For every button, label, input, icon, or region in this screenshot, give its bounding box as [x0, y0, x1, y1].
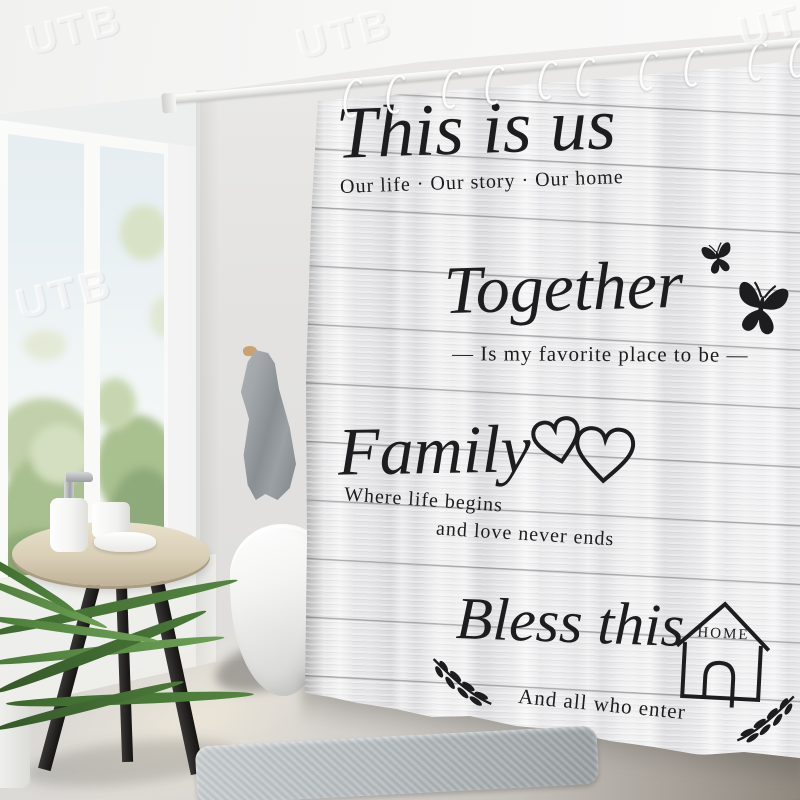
butterfly-icon — [725, 271, 797, 345]
print-headline-family: Family — [337, 414, 531, 485]
soap-dispenser-nozzle — [66, 472, 93, 482]
laurel-branch-icon — [734, 692, 798, 744]
print-headline-bless-this: Bless this — [455, 588, 685, 656]
soap-dispenser-bottle — [50, 498, 88, 552]
print-headline-together: Together — [443, 250, 684, 324]
print-headline-this-is-us: This is us — [335, 87, 617, 171]
laurel-branch-icon — [430, 652, 494, 710]
bathroom-scene: This is us Our life · Our story · Our ho… — [0, 0, 800, 800]
soap-dish — [94, 532, 156, 552]
butterfly-icon — [696, 235, 740, 282]
print-subline-all-who-enter: And all who enter — [517, 686, 686, 723]
print-subline-favorite-place: — Is my favorite place to be — — [452, 343, 749, 366]
tree-foliage — [94, 378, 136, 430]
tree-branch — [24, 330, 66, 360]
print-subline-where-life-begins: Where life begins — [343, 484, 503, 515]
plant-pot — [0, 702, 30, 788]
interlocked-hearts-icon — [528, 410, 653, 514]
home-label: HOME — [697, 625, 750, 644]
tree-branch — [120, 205, 168, 260]
print-subline-love-never-ends: and love never ends — [436, 519, 615, 550]
rod-end-cap — [161, 92, 177, 113]
